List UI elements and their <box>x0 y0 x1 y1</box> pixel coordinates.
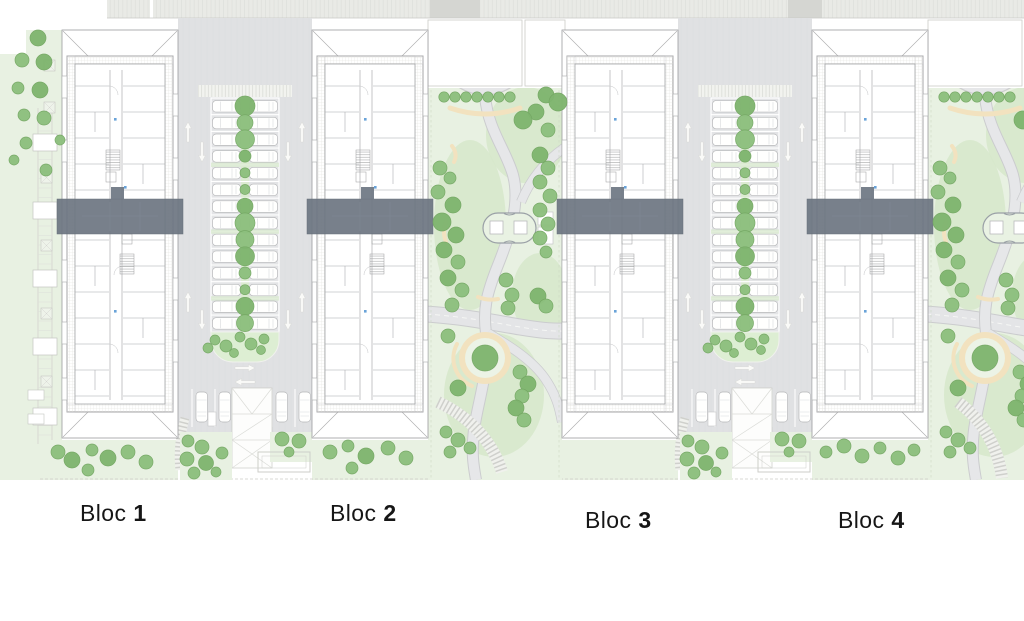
tree-icon <box>1005 92 1015 102</box>
tree-icon <box>739 267 751 279</box>
stairs-icon <box>856 150 870 170</box>
tree-icon <box>972 345 998 371</box>
tree-icon <box>961 92 971 102</box>
tree-icon <box>18 109 30 121</box>
tree-icon <box>784 447 794 457</box>
tree-icon <box>948 227 964 243</box>
tree-icon <box>540 246 552 258</box>
building-bloc-1[interactable] <box>57 30 183 438</box>
tree-icon <box>680 452 694 466</box>
tree-icon <box>237 198 253 214</box>
tree-icon <box>275 432 289 446</box>
tree-icon <box>944 172 956 184</box>
tree-icon <box>445 298 459 312</box>
bloc-2-number: 2 <box>383 500 396 526</box>
tree-icon <box>543 189 557 203</box>
tree-icon <box>323 445 337 459</box>
tree-icon <box>240 185 250 195</box>
tree-icon <box>37 111 51 125</box>
tree-icon <box>100 450 116 466</box>
tree-icon <box>972 92 982 102</box>
tree-icon <box>532 147 548 163</box>
tree-icon <box>944 446 956 458</box>
tree-icon <box>983 92 993 102</box>
bloc-1-word: Bloc <box>80 500 126 526</box>
tree-icon <box>346 462 358 474</box>
bloc-1-number: 1 <box>133 500 146 526</box>
tree-icon <box>40 164 52 176</box>
tree-icon <box>837 439 851 453</box>
tree-icon <box>936 242 952 258</box>
tree-icon <box>514 111 532 129</box>
tree-icon <box>431 185 445 199</box>
tree-icon <box>12 82 24 94</box>
tree-icon <box>259 334 269 344</box>
building-bloc-3[interactable] <box>557 30 683 438</box>
tree-icon <box>541 161 555 175</box>
tree-icon <box>439 92 449 102</box>
tree-icon <box>682 435 694 447</box>
tree-icon <box>737 115 753 131</box>
tree-icon <box>740 185 750 195</box>
tree-icon <box>908 444 920 456</box>
tree-icon <box>292 434 306 448</box>
tree-icon <box>237 315 254 332</box>
tree-icon <box>517 413 531 427</box>
tree-icon <box>381 441 395 455</box>
bloc-3-word: Bloc <box>585 507 631 533</box>
tree-icon <box>483 92 493 102</box>
bloc-1-highlighted-floor[interactable] <box>57 199 183 234</box>
tree-icon <box>236 297 254 315</box>
tree-icon <box>820 446 832 458</box>
tree-icon <box>736 297 754 315</box>
bloc-4-word: Bloc <box>838 507 884 533</box>
tree-icon <box>461 92 471 102</box>
tree-icon <box>1001 301 1015 315</box>
building-bloc-4[interactable] <box>807 30 933 438</box>
tree-icon <box>695 440 709 454</box>
tree-icon <box>182 435 194 447</box>
tree-icon <box>933 161 947 175</box>
tree-icon <box>740 168 750 178</box>
tree-icon <box>236 247 255 266</box>
tree-icon <box>736 231 754 249</box>
building-bloc-2[interactable] <box>307 30 433 438</box>
tree-icon <box>757 346 766 355</box>
tree-icon <box>933 213 951 231</box>
tree-icon <box>237 115 253 131</box>
tree-icon <box>399 451 413 465</box>
tree-icon <box>735 332 745 342</box>
bloc-4-label[interactable]: Bloc4 <box>838 507 905 534</box>
tree-icon <box>445 197 461 213</box>
tree-icon <box>940 270 956 286</box>
tree-icon <box>245 338 257 350</box>
tree-icon <box>703 343 713 353</box>
tree-icon <box>737 198 753 214</box>
tree-icon <box>451 255 465 269</box>
tree-icon <box>874 442 886 454</box>
site-plan-stage: Bloc1 Bloc2 Bloc3 Bloc4 <box>0 0 1024 621</box>
tree-icon <box>941 329 955 343</box>
tree-icon <box>472 92 482 102</box>
stairs-icon <box>606 150 620 170</box>
bloc-3-number: 3 <box>638 507 651 533</box>
tree-icon <box>541 217 555 231</box>
stairs-icon <box>620 254 634 274</box>
stairs-icon <box>120 254 134 274</box>
tree-icon <box>358 448 374 464</box>
tree-icon <box>688 467 700 479</box>
tree-icon <box>699 456 714 471</box>
tree-icon <box>257 346 266 355</box>
tree-icon <box>931 185 945 199</box>
tree-icon <box>464 442 476 454</box>
tree-icon <box>239 267 251 279</box>
tree-icon <box>716 447 728 459</box>
bloc-3-label[interactable]: Bloc3 <box>585 507 652 534</box>
tree-icon <box>951 433 965 447</box>
tree-icon <box>541 123 555 137</box>
tree-icon <box>235 332 245 342</box>
tree-icon <box>240 168 250 178</box>
left-green-strip <box>0 18 62 480</box>
tree-icon <box>499 273 513 287</box>
sidewalk-top <box>107 0 1024 18</box>
tree-icon <box>236 231 254 249</box>
tree-icon <box>82 464 94 476</box>
tree-icon <box>195 440 209 454</box>
tree-icon <box>940 426 952 438</box>
tree-icon <box>494 92 504 102</box>
tree-icon <box>121 445 135 459</box>
tree-icon <box>235 213 255 233</box>
tree-icon <box>549 93 567 111</box>
tree-icon <box>950 92 960 102</box>
tree-icon <box>735 96 755 116</box>
tree-icon <box>55 135 65 145</box>
tree-icon <box>951 255 965 269</box>
stairs-icon <box>356 150 370 170</box>
tree-icon <box>964 442 976 454</box>
tree-icon <box>533 231 547 245</box>
bloc-2-highlighted-floor[interactable] <box>307 199 433 234</box>
tree-icon <box>533 203 547 217</box>
tree-icon <box>450 380 466 396</box>
tree-icon <box>86 444 98 456</box>
stairs-icon <box>106 150 120 170</box>
tree-icon <box>199 456 214 471</box>
tree-icon <box>994 92 1004 102</box>
tree-icon <box>440 270 456 286</box>
tree-icon <box>240 285 250 295</box>
tree-icon <box>945 197 961 213</box>
tree-icon <box>51 445 65 459</box>
tree-icon <box>211 467 221 477</box>
bloc-2-word: Bloc <box>330 500 376 526</box>
tree-icon <box>236 130 255 149</box>
bloc-4-number: 4 <box>891 507 904 533</box>
tree-icon <box>30 30 46 46</box>
stairs-icon <box>370 254 384 274</box>
tree-icon <box>730 349 739 358</box>
bloc-2-label[interactable]: Bloc2 <box>330 500 397 527</box>
tree-icon <box>32 82 48 98</box>
tree-icon <box>433 213 451 231</box>
tree-icon <box>441 329 455 343</box>
tree-icon <box>203 343 213 353</box>
tree-icon <box>792 434 806 448</box>
tree-icon <box>740 285 750 295</box>
tree-icon <box>15 53 29 67</box>
tree-icon <box>505 92 515 102</box>
tree-icon <box>451 433 465 447</box>
tree-icon <box>210 335 220 345</box>
tree-icon <box>284 447 294 457</box>
tree-icon <box>710 335 720 345</box>
tree-icon <box>945 298 959 312</box>
tree-icon <box>1005 288 1019 302</box>
tree-icon <box>230 349 239 358</box>
tree-icon <box>36 54 52 70</box>
tree-icon <box>775 432 789 446</box>
tree-icon <box>188 467 200 479</box>
tree-icon <box>433 161 447 175</box>
tree-icon <box>735 213 755 233</box>
bloc-4-highlighted-floor[interactable] <box>807 199 933 234</box>
stairs-icon <box>870 254 884 274</box>
tree-icon <box>955 283 969 297</box>
tree-icon <box>20 137 32 149</box>
tree-icon <box>448 227 464 243</box>
tree-icon <box>216 447 228 459</box>
tree-icon <box>239 150 251 162</box>
tree-icon <box>759 334 769 344</box>
tree-icon <box>539 299 553 313</box>
tree-icon <box>235 96 255 116</box>
tree-icon <box>939 92 949 102</box>
tree-icon <box>472 345 498 371</box>
tree-icon <box>139 455 153 469</box>
tree-icon <box>501 301 515 315</box>
tree-icon <box>950 380 966 396</box>
tree-icon <box>455 283 469 297</box>
tree-icon <box>444 172 456 184</box>
tree-icon <box>9 155 19 165</box>
tree-icon <box>64 452 80 468</box>
tree-icon <box>444 446 456 458</box>
tree-icon <box>505 288 519 302</box>
tree-icon <box>739 150 751 162</box>
bloc-3-highlighted-floor[interactable] <box>557 199 683 234</box>
tree-icon <box>342 440 354 452</box>
tree-icon <box>999 273 1013 287</box>
tree-icon <box>440 426 452 438</box>
tree-icon <box>891 451 905 465</box>
tree-icon <box>180 452 194 466</box>
tree-icon <box>736 247 755 266</box>
tree-icon <box>736 130 755 149</box>
tree-icon <box>1013 365 1024 379</box>
tree-icon <box>436 242 452 258</box>
tree-icon <box>450 92 460 102</box>
tree-icon <box>737 315 754 332</box>
tree-icon <box>711 467 721 477</box>
bloc-1-label[interactable]: Bloc1 <box>80 500 147 527</box>
tree-icon <box>533 175 547 189</box>
tree-icon <box>855 449 869 463</box>
tree-icon <box>745 338 757 350</box>
